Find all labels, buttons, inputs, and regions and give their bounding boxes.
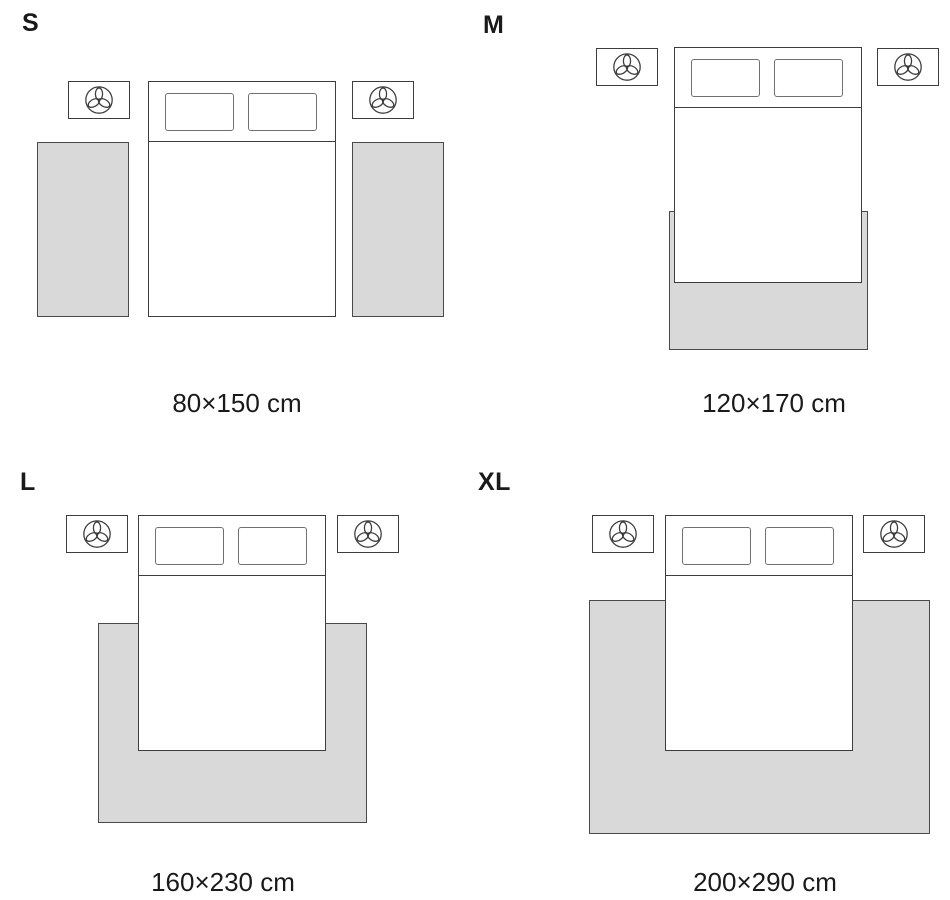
plant-icon bbox=[877, 517, 911, 551]
panel-m: M bbox=[475, 0, 950, 450]
headboard-divider bbox=[139, 575, 325, 576]
nightstand-left bbox=[596, 48, 658, 86]
nightstand-right bbox=[337, 515, 399, 553]
rug-size-guide-diagram: S bbox=[0, 0, 950, 900]
panel-s: S bbox=[0, 0, 475, 450]
nightstand-left bbox=[592, 515, 654, 553]
bed bbox=[665, 515, 853, 751]
size-label: 160×230 cm bbox=[73, 868, 373, 897]
bed bbox=[674, 47, 862, 283]
rug-right bbox=[352, 142, 444, 317]
headboard-divider bbox=[149, 141, 335, 142]
nightstand-right bbox=[863, 515, 925, 553]
bed bbox=[148, 81, 336, 317]
panel-l: L bbox=[0, 450, 475, 900]
nightstand-right bbox=[352, 81, 414, 119]
pillow-right bbox=[774, 59, 843, 97]
pillow-left bbox=[691, 59, 760, 97]
nightstand-left bbox=[68, 81, 130, 119]
size-letter: M bbox=[483, 13, 504, 38]
plant-icon bbox=[351, 517, 385, 551]
panel-xl: XL bbox=[475, 450, 950, 900]
plant-icon bbox=[610, 50, 644, 84]
nightstand-left bbox=[66, 515, 128, 553]
size-letter: XL bbox=[478, 470, 511, 495]
rug-left bbox=[37, 142, 129, 317]
plant-icon bbox=[80, 517, 114, 551]
size-letter: S bbox=[22, 11, 39, 36]
pillow-left bbox=[682, 527, 751, 565]
size-label: 80×150 cm bbox=[87, 389, 387, 418]
pillow-right bbox=[238, 527, 307, 565]
pillow-right bbox=[248, 93, 317, 131]
pillow-left bbox=[155, 527, 224, 565]
size-letter: L bbox=[20, 470, 36, 495]
bed bbox=[138, 515, 326, 751]
size-label: 120×170 cm bbox=[624, 389, 924, 418]
headboard-divider bbox=[675, 107, 861, 108]
plant-icon bbox=[82, 83, 116, 117]
nightstand-right bbox=[877, 48, 939, 86]
headboard-divider bbox=[666, 575, 852, 576]
pillow-left bbox=[165, 93, 234, 131]
plant-icon bbox=[366, 83, 400, 117]
size-label: 200×290 cm bbox=[615, 868, 915, 897]
plant-icon bbox=[606, 517, 640, 551]
plant-icon bbox=[891, 50, 925, 84]
pillow-right bbox=[765, 527, 834, 565]
